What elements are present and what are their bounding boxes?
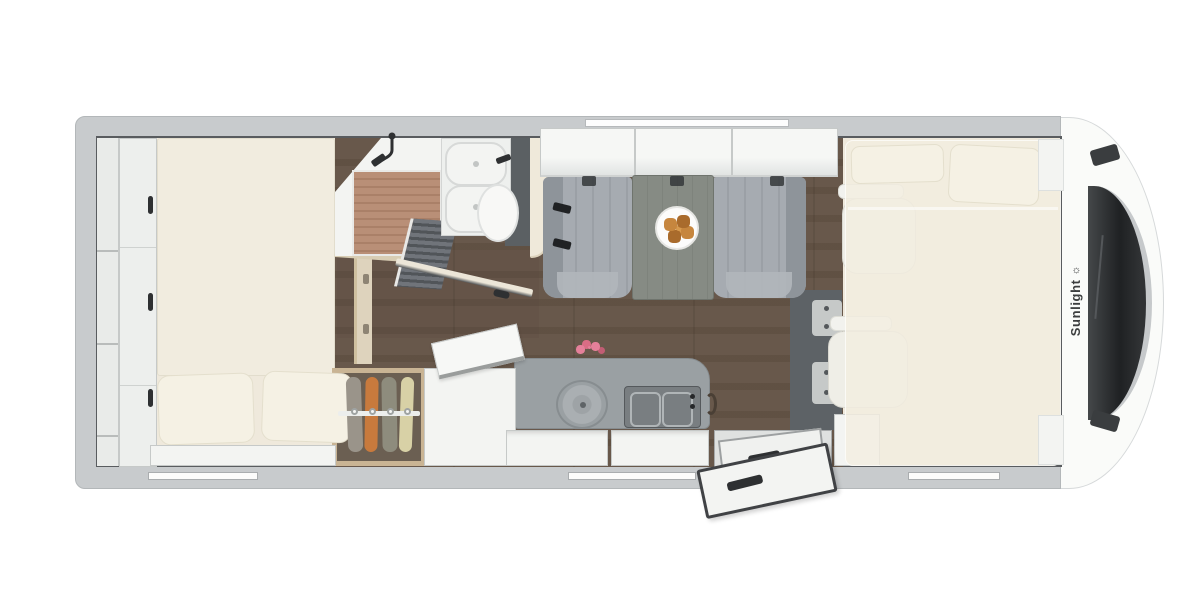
bed-pillow <box>157 372 255 445</box>
hob-knob-icon <box>690 394 695 399</box>
dinette-bench-right <box>712 177 806 298</box>
door-handle-icon <box>726 474 763 491</box>
hanger-hook-icon <box>404 408 411 415</box>
locker-divider <box>634 129 636 175</box>
hanger-hook-icon <box>351 408 358 415</box>
brand-label: Sunlight <box>1069 279 1084 336</box>
shelf-divider <box>97 435 118 437</box>
flowers-decoration-icon <box>588 346 591 349</box>
burner-grate-icon <box>662 392 693 427</box>
refrigerator-cabinet <box>424 368 516 466</box>
screw-icon <box>824 324 829 329</box>
burner-grate-icon <box>630 392 661 427</box>
croissants-icon <box>677 228 680 231</box>
drop-bed-pillow <box>851 144 945 184</box>
hinge-icon <box>363 324 369 334</box>
faucet-icon <box>495 154 511 165</box>
cabinet-handle-icon <box>148 293 153 311</box>
sink-knob-icon <box>580 402 586 408</box>
hanger-hook-icon <box>369 408 376 415</box>
dashboard-corner <box>1038 415 1064 465</box>
motorhome-floorplan: Sunlight ☼ <box>0 0 1200 600</box>
window-bottom-wall <box>148 472 258 480</box>
cabinet-handle-icon <box>148 196 153 214</box>
window-top-wall <box>585 119 789 127</box>
dashboard-corner <box>1038 139 1064 191</box>
kitchen-sink <box>556 380 608 429</box>
cabinet-handle-icon <box>148 389 153 407</box>
locker-divider <box>731 129 733 175</box>
bed-seam <box>848 207 1058 210</box>
grab-handle-icon <box>582 176 596 186</box>
rear-bed-mattress <box>157 138 335 376</box>
bed-pillow <box>261 370 353 443</box>
gas-hob <box>624 386 701 428</box>
shelf-divider <box>97 343 118 345</box>
brand-badge: Sunlight ☼ <box>1060 240 1092 360</box>
window-bottom-wall <box>568 472 696 480</box>
hinge-icon <box>363 274 369 284</box>
bed-front-rail <box>150 445 336 466</box>
kitchen-drawer <box>506 430 608 466</box>
bench-seat-front <box>557 272 618 298</box>
hob-knob-icon <box>690 404 695 409</box>
shelf-divider <box>97 250 118 252</box>
screw-icon <box>824 306 829 311</box>
bench-seat-front <box>726 272 792 298</box>
sunlight-sun-logo-icon: ☼ <box>1070 264 1082 275</box>
plate-with-croissants <box>655 206 699 250</box>
toilet <box>477 184 519 242</box>
overhead-lockers <box>540 128 838 177</box>
cabinet-seam <box>120 247 156 248</box>
grab-handle-icon <box>770 176 784 186</box>
window-bottom-wall <box>908 472 1000 480</box>
hanger-hook-icon <box>387 408 394 415</box>
cabinet-seam <box>120 385 156 386</box>
drain-icon <box>473 161 479 167</box>
washbasin <box>445 142 507 186</box>
drop-bed-pillow <box>948 144 1042 207</box>
kitchen-drawer <box>611 430 709 466</box>
shelf-column <box>97 138 119 466</box>
shower-fixture-icon <box>358 132 402 180</box>
grab-handle-icon <box>670 176 684 186</box>
towel-ring-icon <box>705 393 717 415</box>
bedroom-partition-edge <box>354 252 372 364</box>
